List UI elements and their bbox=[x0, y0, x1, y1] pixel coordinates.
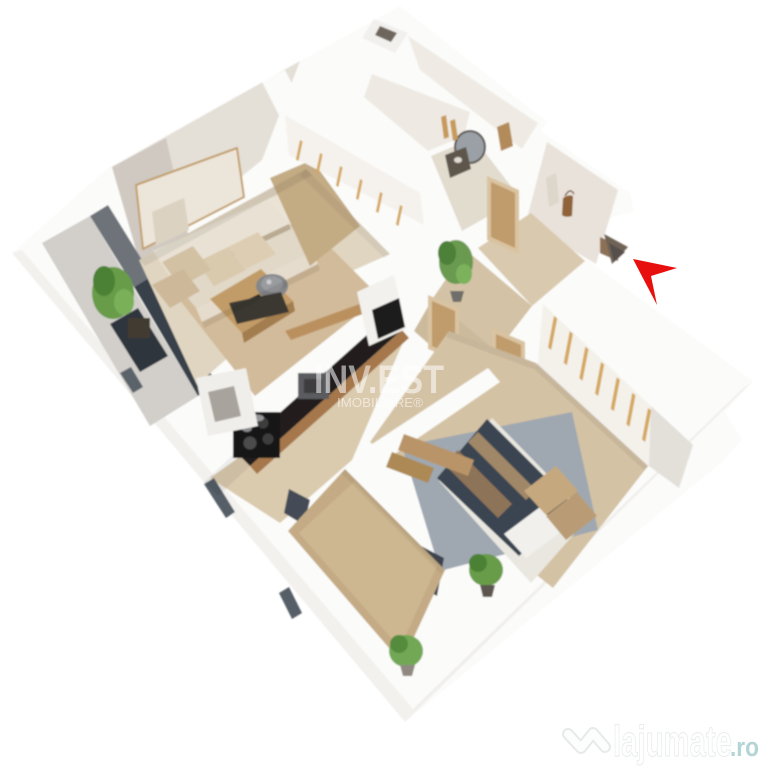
svg-text:.ro: .ro bbox=[730, 732, 759, 762]
svg-text:IMOBILIARE®: IMOBILIARE® bbox=[337, 395, 423, 410]
svg-text:lajumate: lajumate bbox=[613, 717, 732, 766]
